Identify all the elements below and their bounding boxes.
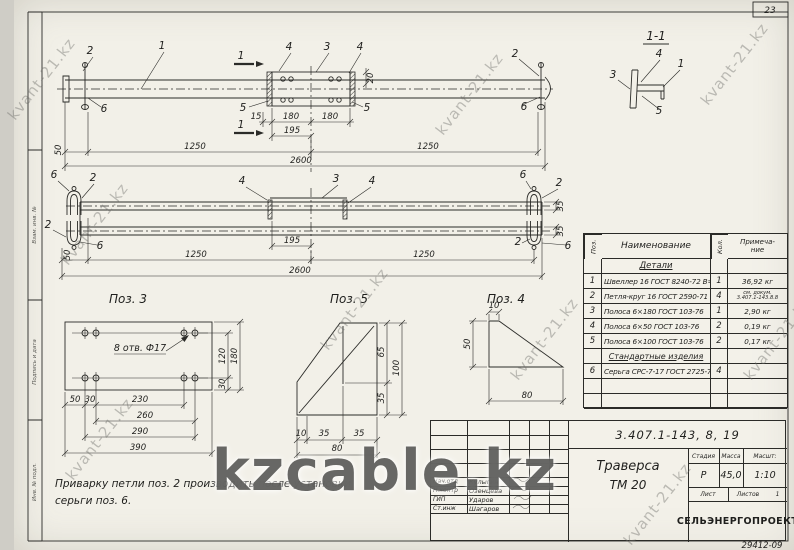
dim-label: 20 <box>366 73 376 84</box>
dim-label: 180 <box>230 348 240 364</box>
callout: 6 <box>521 101 528 113</box>
dim-label: 35 <box>556 226 566 237</box>
dim-label: 50 <box>54 145 64 156</box>
table-row-qty: 2 <box>711 334 728 349</box>
dim-label: 1250 <box>184 142 206 152</box>
section-mark-label: 1 <box>238 119 245 131</box>
cell-empty <box>728 379 787 394</box>
dim-label: 120 <box>218 348 228 364</box>
parts-header-qty: Кол. <box>711 234 728 259</box>
parts-header-note-line2: ние <box>751 246 764 254</box>
cell-empty <box>602 379 711 394</box>
cell-empty <box>728 259 787 274</box>
cell-empty <box>584 349 602 364</box>
table-row-note: см. докум. 3.407.1-143.8.8 <box>728 289 787 304</box>
scanned-drawing-sheet: { "page": { "corner_number": "23", "bott… <box>0 0 794 550</box>
table-row-pos: 5 <box>584 334 602 349</box>
table-row-note: 36,92 кг <box>728 274 787 289</box>
callout: 6 <box>101 103 108 115</box>
parts-header-pos: Поз. <box>584 234 602 259</box>
dim-label: 100 <box>392 360 402 376</box>
table-row-qty: 1 <box>711 304 728 319</box>
cell-empty <box>584 259 602 274</box>
table-row-name: Полоса 6×100 ГОСТ 103-76 <box>602 334 711 349</box>
table-row-qty: 1 <box>711 274 728 289</box>
callout: 1 <box>678 58 685 70</box>
table-row-qty: 2 <box>711 319 728 334</box>
note-line2: серьги поз. 6. <box>55 495 131 507</box>
scale-value: 1:10 <box>743 463 787 487</box>
hole-note: 8 отв. Ф17 <box>114 343 166 354</box>
sheet-label: Лист <box>688 487 728 501</box>
dim-label: 50 <box>463 339 473 350</box>
sheet-corner-number: 23 <box>764 6 776 16</box>
cell-empty <box>711 259 728 274</box>
dim-label: 195 <box>284 126 300 136</box>
callout: 6 <box>51 169 58 181</box>
callout: 4 <box>239 175 246 187</box>
frame-field-podpis: Подпись и дата <box>32 339 38 385</box>
dim-label: 65 <box>377 347 387 358</box>
detail-pos3: Поз. 3 8 отв. Ф17 50 30 230 260 290 390 … <box>62 292 244 457</box>
table-row-name: Петля-круг 16 ГОСТ 2590-71 <box>602 289 711 304</box>
scale-label: Масшт: <box>743 449 787 463</box>
parts-section-details: Детали <box>602 259 711 274</box>
section-view-1-1: 1-1 4 1 3 5 <box>610 29 685 117</box>
callout: 5 <box>240 102 247 114</box>
cell-empty <box>584 394 602 409</box>
section-mark-label: 1 <box>238 50 245 62</box>
detail-title: Поз. 3 <box>109 292 147 306</box>
parts-table: Поз. Наименование Кол. Примеча- ние Дета… <box>583 233 788 408</box>
dim-label: 180 <box>283 112 299 122</box>
table-row-note: 2,90 кг <box>728 304 787 319</box>
dim-label: 1250 <box>413 250 435 260</box>
callout: 3 <box>610 69 617 81</box>
dim-label: 30 <box>85 395 96 405</box>
dim-label: 30 <box>218 379 228 390</box>
callout: 5 <box>364 102 371 114</box>
callout: 2 <box>90 172 97 184</box>
callout: 4 <box>656 48 663 60</box>
cell-empty <box>584 379 602 394</box>
parts-header-note: Примеча- ние <box>728 234 787 259</box>
frame-field-inv: Инв. № подл. <box>32 463 38 501</box>
stage-value: Р <box>688 463 719 487</box>
table-row-note-line2: 3.407.1-143.8.8 <box>737 296 778 301</box>
sheets-value: 1 <box>768 487 787 501</box>
callout: 2 <box>512 48 519 60</box>
dim-label: 390 <box>130 443 146 453</box>
callout: 2 <box>515 236 522 248</box>
cell-empty <box>711 379 728 394</box>
callout: 1 <box>159 40 166 52</box>
table-row-pos: 4 <box>584 319 602 334</box>
parts-section-standard: Стандартные изделия <box>602 349 711 364</box>
stage-label: Стадия <box>688 449 719 463</box>
cell-empty <box>711 394 728 409</box>
parts-header-note-line1: Примеча- <box>740 238 775 246</box>
dim-label: 35 <box>556 201 566 212</box>
dim-label: 2600 <box>289 266 311 276</box>
dim-label: 290 <box>132 427 148 437</box>
table-row-pos: 1 <box>584 274 602 289</box>
dim-label: 2600 <box>290 156 312 166</box>
doc-number: 3.407.1-143, 8, 19 <box>568 421 787 449</box>
table-row-qty: 4 <box>711 289 728 304</box>
callout: 2 <box>87 45 94 57</box>
callout: 6 <box>97 240 104 252</box>
table-row-pos: 2 <box>584 289 602 304</box>
callout: 4 <box>357 41 364 53</box>
front-view: 2 1 4 3 4 5 5 2 6 6 1 1 15 180 180 195 1… <box>54 40 553 172</box>
signature-name: Шагаров <box>469 505 499 513</box>
callout: 2 <box>45 219 52 231</box>
parts-header-name: Наименование <box>602 234 711 259</box>
dim-label: 1250 <box>417 142 439 152</box>
callout: 6 <box>565 240 572 252</box>
table-row-name: Полоса 6×50 ГОСТ 103-76 <box>602 319 711 334</box>
callout: 6 <box>520 169 527 181</box>
dim-label: 260 <box>137 411 153 421</box>
callout: 4 <box>369 175 376 187</box>
dim-label: 1250 <box>185 250 207 260</box>
callout: 5 <box>656 105 663 117</box>
cell-empty <box>602 394 711 409</box>
dim-label: 180 <box>322 112 338 122</box>
callout: 4 <box>286 41 293 53</box>
callout: 2 <box>556 177 563 189</box>
mass-label: Масса <box>719 449 743 463</box>
frame-field-vzam: Взам. инв. № <box>32 206 38 244</box>
stamp-code: 29412-09 <box>742 541 783 550</box>
section-view-title: 1-1 <box>646 29 666 43</box>
mass-value: 45,0 <box>719 463 743 487</box>
dim-label: 80 <box>522 391 533 401</box>
table-row-name: Полоса 6×180 ГОСТ 103-76 <box>602 304 711 319</box>
dim-label: 10 <box>489 301 500 311</box>
organization-name: СЕЛЬЭНЕРГОПРОЕКТ <box>688 501 787 542</box>
table-row-pos: 3 <box>584 304 602 319</box>
dim-label: 15 <box>251 112 262 122</box>
signature-role: Ст.инж <box>433 505 456 512</box>
callout: 3 <box>324 41 331 53</box>
table-row-qty: 4 <box>711 364 728 379</box>
watermark-large: kzcable.kz <box>212 438 557 504</box>
table-row-pos: 6 <box>584 364 602 379</box>
sheets-label: Листов <box>728 487 768 501</box>
dim-label: 50 <box>70 395 81 405</box>
table-row-name: Швеллер 16 ГОСТ 8240-72 В=2600 <box>602 274 711 289</box>
cell-empty <box>728 394 787 409</box>
table-row-name: Серьга СРС-7-17 ГОСТ 2725-78 <box>602 364 711 379</box>
callout: 3 <box>333 173 340 185</box>
detail-pos4: Поз. 4 10 50 80 <box>463 292 566 405</box>
dim-label: 35 <box>377 393 387 404</box>
dim-label: 195 <box>284 236 300 246</box>
cell-empty <box>711 349 728 364</box>
